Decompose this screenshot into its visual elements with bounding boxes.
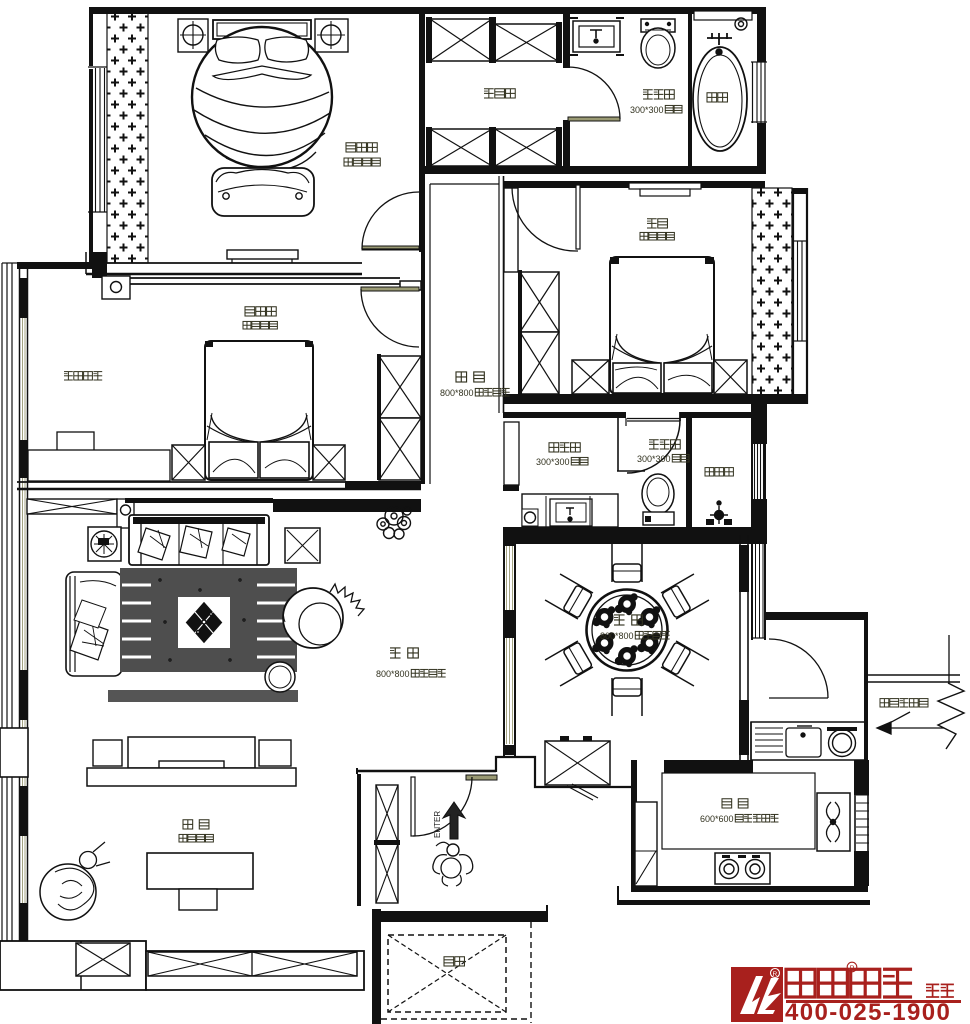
svg-text:800*800: 800*800 [440,388,474,398]
svg-text:ENTER: ENTER [433,811,442,838]
svg-text:R: R [850,966,855,973]
svg-text:R: R [773,971,778,978]
svg-text:400-025-1900: 400-025-1900 [785,999,951,1024]
svg-text:300*300: 300*300 [637,454,671,464]
svg-text:600*600: 600*600 [700,814,734,824]
svg-text:800*800: 800*800 [376,669,410,679]
svg-text:800*800: 800*800 [600,631,634,641]
svg-text:300*300: 300*300 [536,457,570,467]
svg-text:300*300: 300*300 [630,105,664,115]
